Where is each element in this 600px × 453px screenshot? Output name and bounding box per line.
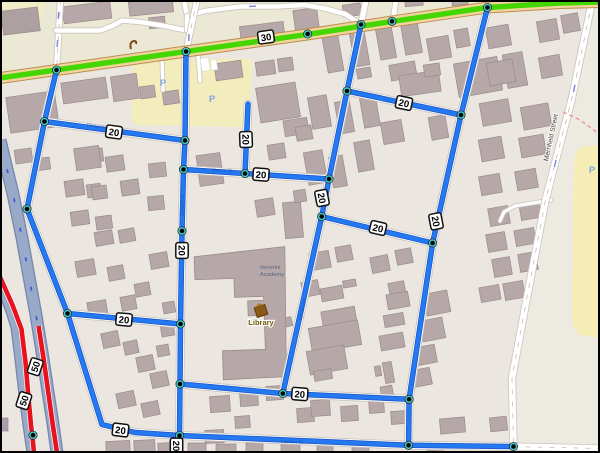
svg-text:20: 20 [175, 245, 186, 256]
svg-text:30: 30 [260, 32, 272, 44]
svg-text:20: 20 [114, 425, 126, 437]
svg-text:Venerini: Venerini [260, 265, 281, 271]
svg-text:20: 20 [108, 127, 120, 139]
svg-text:Library: Library [248, 318, 274, 327]
svg-text:20: 20 [294, 389, 305, 401]
svg-text:20: 20 [239, 134, 250, 145]
svg-text:20: 20 [118, 315, 130, 327]
svg-text:Academy: Academy [260, 272, 284, 278]
svg-text:20: 20 [255, 170, 266, 182]
svg-text:P: P [160, 78, 167, 89]
svg-text:School St: School St [180, 194, 186, 216]
svg-text:P: P [589, 165, 596, 176]
svg-text:P: P [209, 94, 216, 105]
svg-text:20: 20 [315, 192, 328, 205]
svg-text:Harlem St: Harlem St [281, 439, 304, 446]
svg-text:20: 20 [397, 98, 410, 111]
svg-text:20: 20 [429, 215, 442, 228]
svg-text:20: 20 [170, 441, 181, 452]
